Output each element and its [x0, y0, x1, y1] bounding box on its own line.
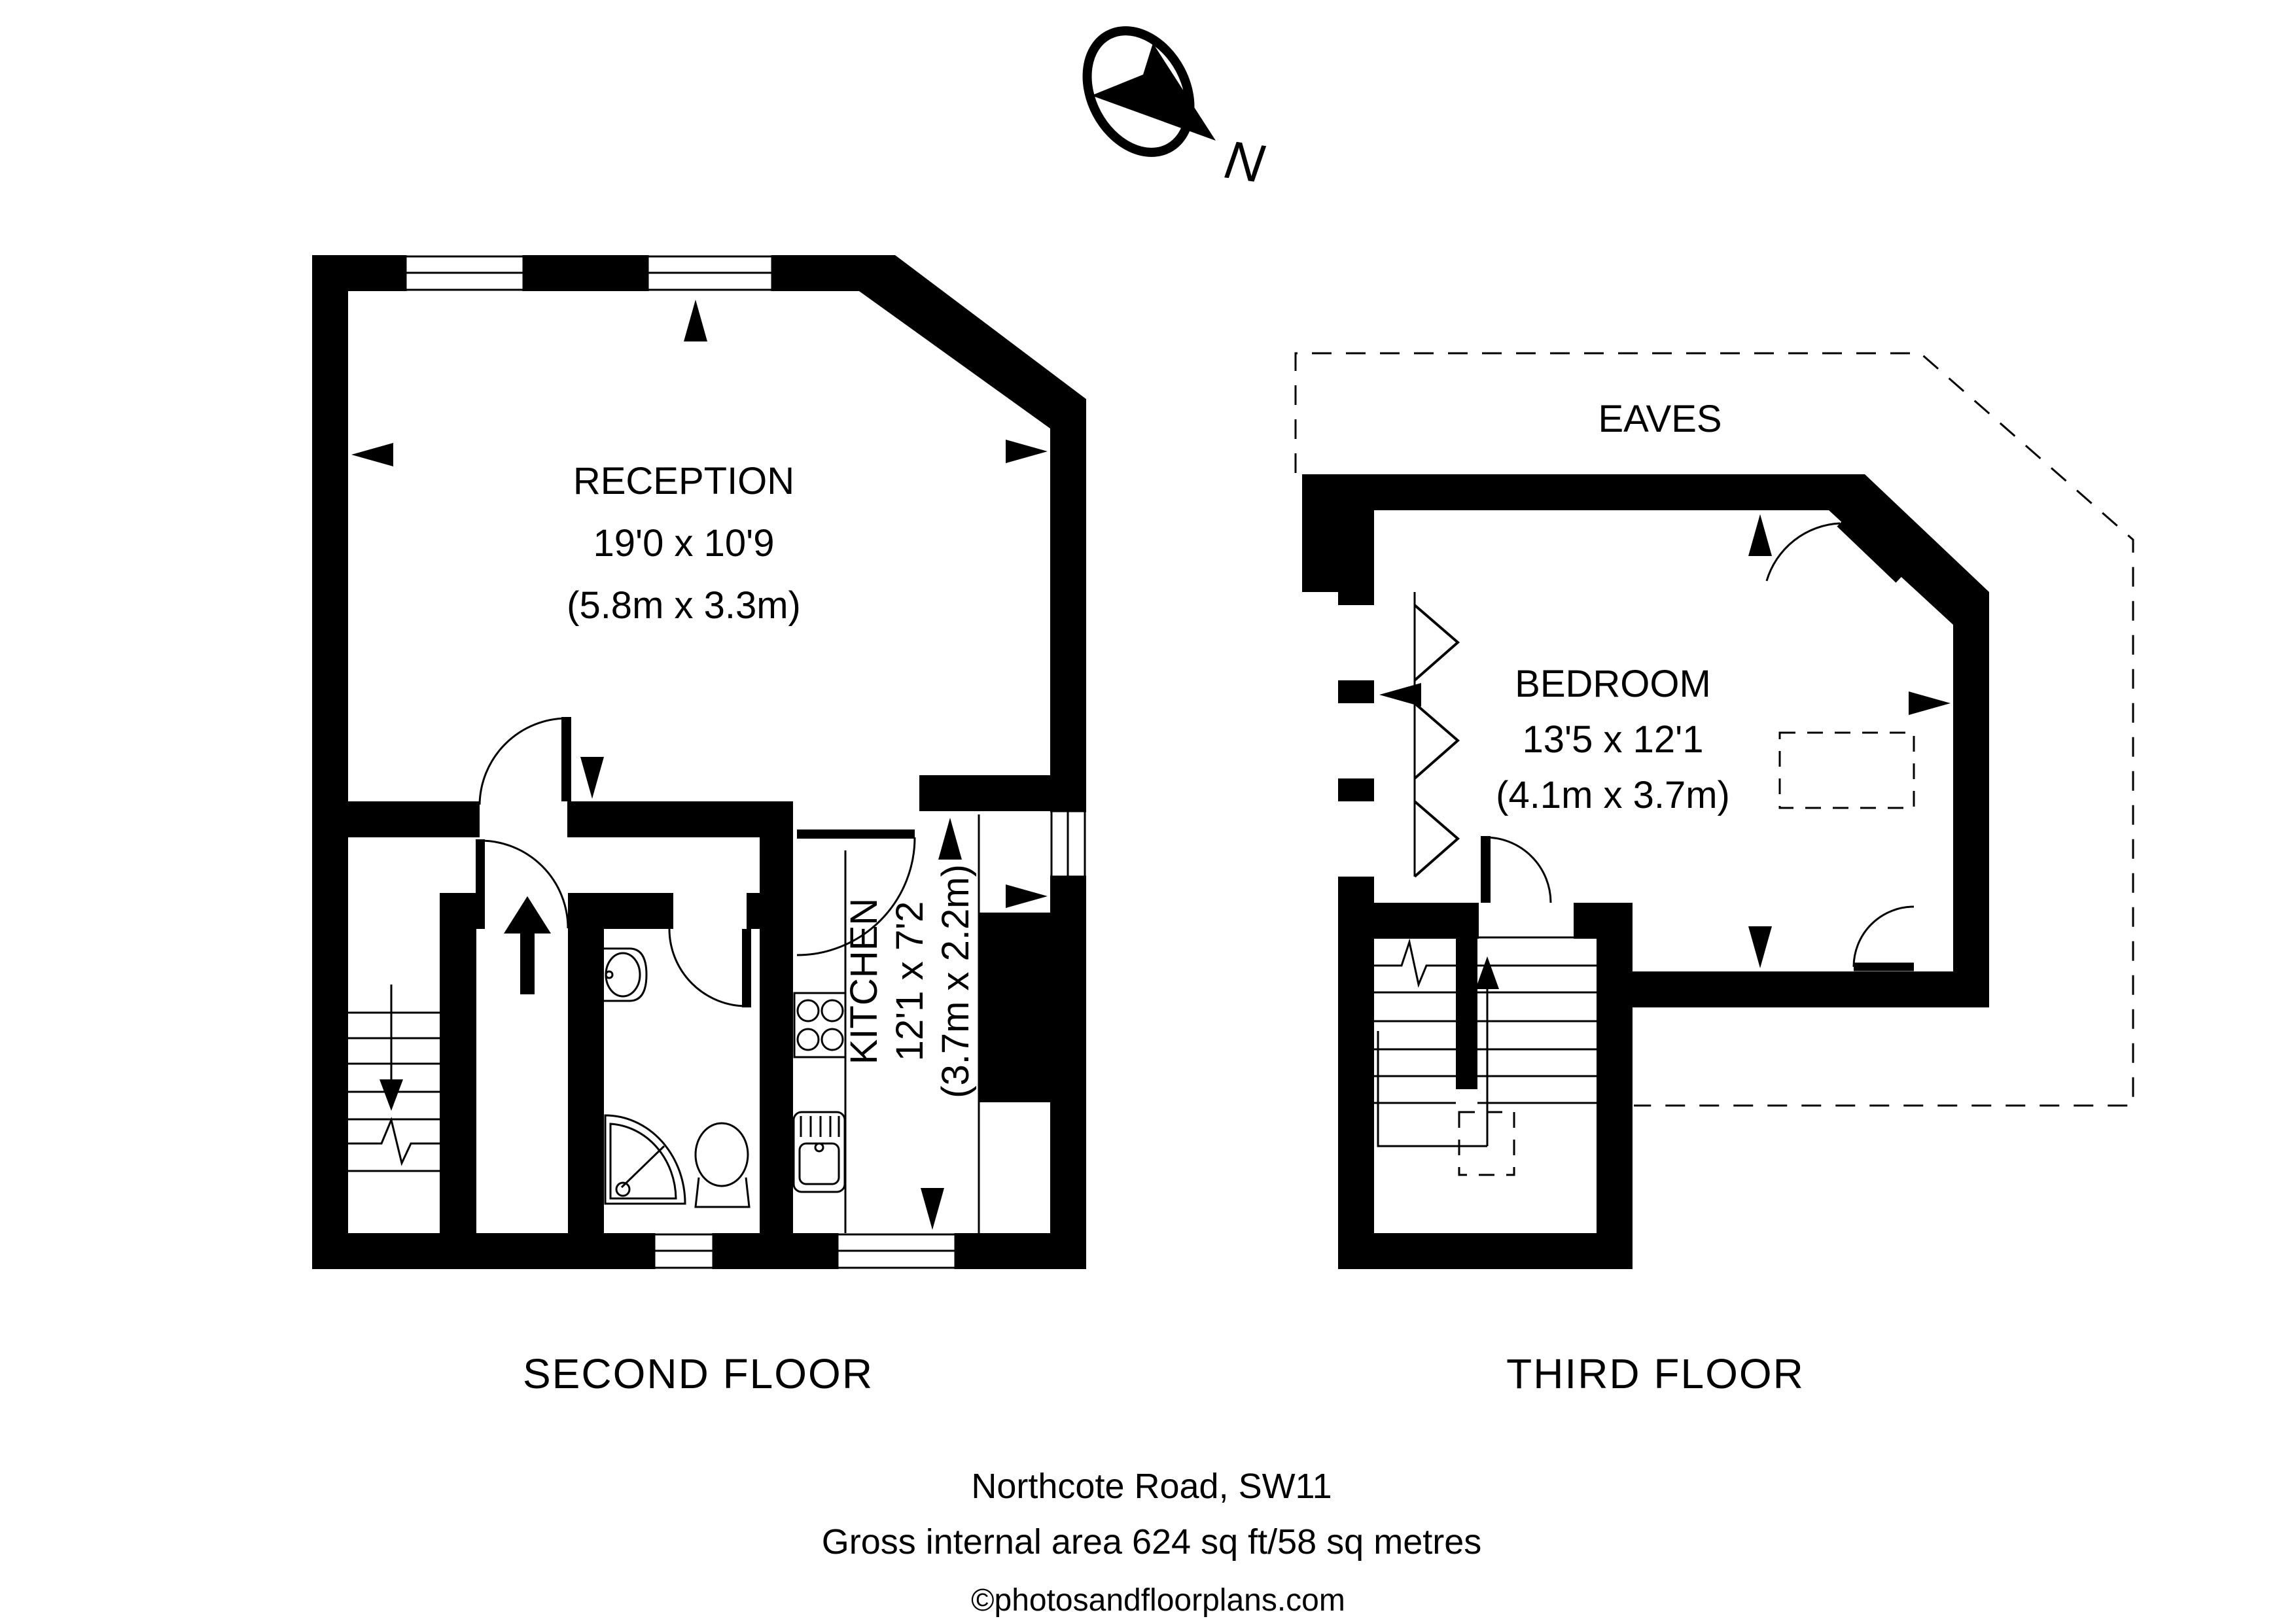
second-floor-plan: RECEPTION 19'0 x 10'9 (5.8m x 3.3m) KITC… — [312, 255, 1086, 1269]
tf-right-wall — [1953, 592, 1989, 1007]
sf-arrow-down — [580, 757, 604, 799]
bedroom-dims-metric: (4.1m x 3.7m) — [1496, 774, 1730, 816]
tf-eaves-door-bottom — [1854, 907, 1914, 967]
tf-arrow-right — [1909, 691, 1951, 715]
reception-dims-metric: (5.8m x 3.3m) — [567, 584, 801, 627]
north-label: N — [1221, 130, 1268, 194]
sf-stairs-down — [348, 985, 440, 1171]
sf-entrance-arrow — [504, 896, 551, 994]
third-floor-plan: EAVES BEDROOM 13'5 x 12'1 (4.1m x 3.7m) — [1296, 353, 2133, 1269]
sf-window-top-left — [406, 255, 523, 291]
tf-arrow-up — [1748, 514, 1772, 556]
sf-bathroom-top-wall-right — [747, 893, 760, 929]
basin-icon — [604, 949, 646, 1001]
sf-window-top-right — [648, 255, 772, 291]
sf-stair-wall — [440, 893, 476, 1233]
tf-bottom-wall — [1597, 971, 1989, 1007]
second-floor-title: SECOND FLOOR — [523, 1350, 874, 1397]
bedroom-name: BEDROOM — [1515, 663, 1711, 705]
tf-casement-window-icon — [1415, 605, 1458, 680]
tf-casement-window-icon — [1415, 801, 1458, 877]
sf-left-wall — [312, 255, 348, 1269]
sf-kitchen-arrow-right — [1006, 884, 1048, 908]
sf-bathroom-top-wall-left — [604, 893, 673, 929]
sf-arrow-right — [1006, 440, 1048, 463]
sf-kitchen-top-wall — [919, 775, 1050, 811]
tf-arrow-down — [1748, 926, 1772, 968]
third-floor-title: THIRD FLOOR — [1506, 1350, 1805, 1397]
kitchen-dims-imperial: 12'1 x 7'2 — [889, 901, 931, 1062]
sf-bathroom-kitchen-wall — [760, 811, 793, 1233]
sf-chimney-breast — [979, 913, 1050, 1102]
footer-address: Northcote Road, SW11 — [971, 1467, 1332, 1506]
reception-dims-imperial: 19'0 x 10'9 — [593, 522, 775, 565]
sf-arrow-up — [684, 300, 707, 341]
tf-left-corner-wall — [1302, 474, 1374, 592]
tf-bedroom-door — [1481, 836, 1551, 903]
sf-divider-wall-right — [567, 801, 793, 837]
tf-left-window-wall — [1338, 592, 1458, 903]
compass: N — [1067, 13, 1268, 194]
tf-stair-right-wall — [1597, 903, 1633, 1269]
sf-window-bottom-bathroom — [654, 1233, 713, 1269]
kitchen-room-label: KITCHEN 12'1 x 7'2 (3.7m x 2.2m) — [843, 864, 977, 1098]
reception-room-label: RECEPTION 19'0 x 10'9 (5.8m x 3.3m) — [567, 460, 801, 627]
sf-arrow-left — [351, 443, 393, 466]
sf-window-right-kitchen — [1050, 811, 1086, 877]
sf-kitchen-arrow-up — [938, 818, 962, 860]
tf-stairs-up — [1374, 913, 1597, 1175]
kitchen-sink-icon — [794, 1112, 845, 1192]
footer-copyright: ©photosandfloorplans.com — [971, 1583, 1345, 1618]
sf-bathroom-left-wall — [568, 893, 604, 1233]
eaves-label: EAVES — [1598, 398, 1722, 440]
tf-stair-bottom-wall — [1338, 1233, 1633, 1269]
footer: Northcote Road, SW11 Gross internal area… — [822, 1467, 1482, 1618]
bedroom-room-label: BEDROOM 13'5 x 12'1 (4.1m x 3.7m) — [1496, 663, 1730, 816]
toilet-icon — [696, 1123, 749, 1207]
sf-top-wall — [312, 255, 895, 291]
stove-icon — [794, 993, 845, 1057]
floorplan-image: N — [0, 0, 2296, 1623]
kitchen-dims-metric: (3.7m x 2.2m) — [934, 864, 977, 1098]
kitchen-name: KITCHEN — [843, 898, 885, 1065]
footer-area: Gross internal area 624 sq ft/58 sq metr… — [822, 1522, 1482, 1562]
bedroom-skylight — [1780, 733, 1914, 808]
reception-name: RECEPTION — [573, 460, 794, 502]
floorplan-page: N — [0, 0, 2296, 1623]
sf-reception-door — [480, 717, 571, 805]
bedroom-dims-imperial: 13'5 x 12'1 — [1523, 718, 1704, 761]
sf-window-bottom-kitchen — [838, 1233, 955, 1269]
tf-stair-left-wall — [1338, 903, 1374, 1269]
tf-casement-window-icon — [1415, 703, 1458, 778]
tf-stair-top-wall-right — [1574, 903, 1597, 939]
shower-icon — [605, 1115, 685, 1204]
sf-kitchen-arrow-down — [921, 1188, 944, 1230]
sf-bathroom-door — [669, 929, 751, 1007]
tf-arrow-left — [1379, 683, 1421, 707]
sf-divider-wall-left — [312, 801, 480, 837]
tf-top-wall — [1302, 474, 1865, 510]
